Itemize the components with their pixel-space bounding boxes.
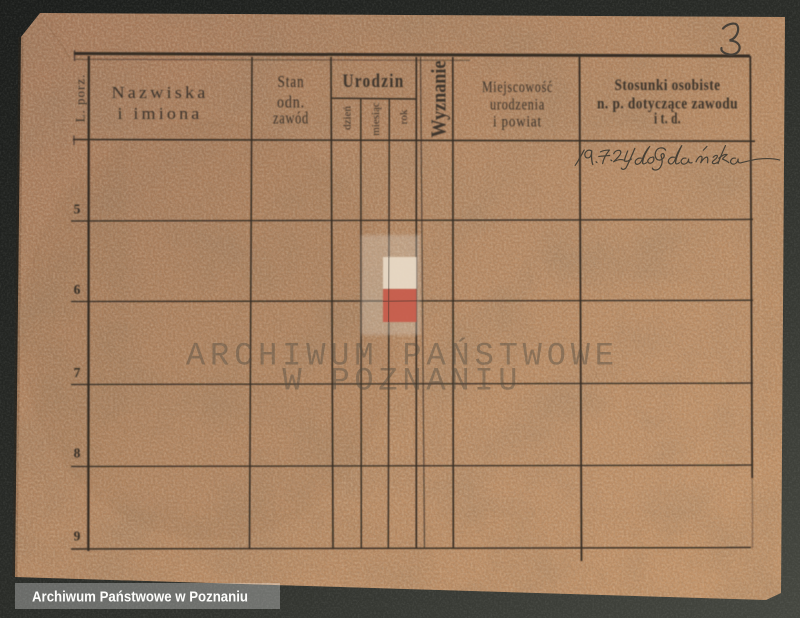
svg-text:zawód: zawód: [273, 109, 309, 128]
svg-text:Miejscowość: Miejscowość: [482, 79, 553, 96]
svg-text:Urodzin: Urodzin: [343, 72, 405, 92]
svg-text:L. porz.: L. porz.: [73, 74, 88, 123]
svg-text:8: 8: [74, 446, 81, 461]
svg-text:Wyznanie: Wyznanie: [427, 61, 451, 138]
svg-text:dzień: dzień: [341, 106, 353, 130]
svg-text:5: 5: [74, 202, 81, 217]
svg-text:Nazwiska: Nazwiska: [112, 83, 209, 102]
svg-text:Stan: Stan: [278, 72, 305, 91]
svg-text:i imiona: i imiona: [118, 104, 203, 123]
svg-text:9: 9: [74, 529, 81, 544]
svg-text:urodzenia: urodzenia: [490, 97, 545, 114]
svg-text:miesiąc: miesiąc: [370, 102, 382, 136]
svg-text:7: 7: [74, 365, 81, 380]
svg-text:6: 6: [74, 282, 81, 297]
svg-text:Stosunki osobiste: Stosunki osobiste: [615, 77, 721, 94]
svg-text:i t. d.: i t. d.: [654, 111, 681, 128]
svg-text:rok: rok: [398, 109, 410, 124]
svg-text:Archiwum Państwowe w Poznaniu: Archiwum Państwowe w Poznaniu: [32, 590, 248, 606]
svg-text:i powiat: i powiat: [493, 114, 542, 131]
